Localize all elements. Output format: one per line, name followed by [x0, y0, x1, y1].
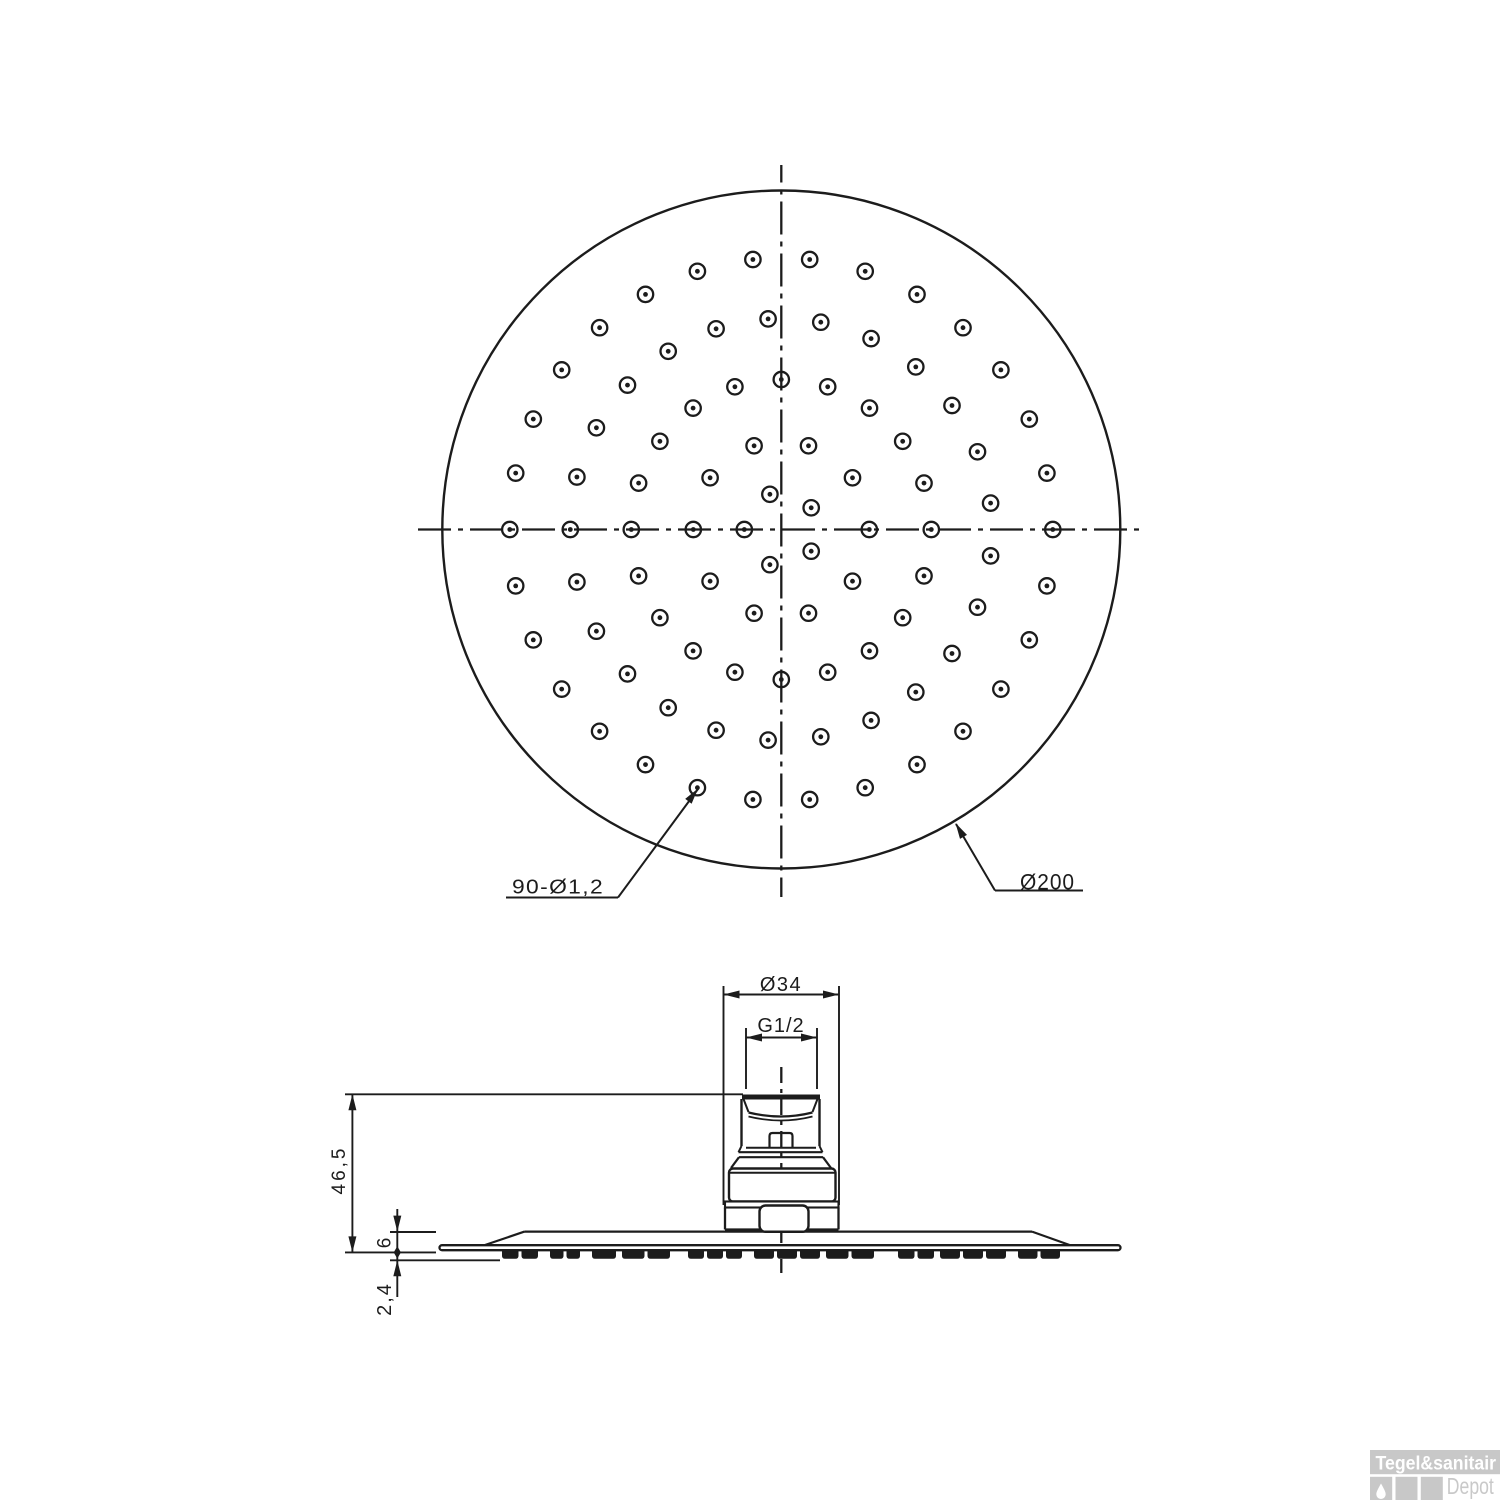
svg-text:Depot: Depot — [1447, 1473, 1494, 1499]
svg-text:2,4: 2,4 — [374, 1282, 396, 1316]
svg-text:G1/2: G1/2 — [757, 1015, 804, 1037]
svg-text:Tegel&sanitair: Tegel&sanitair — [1376, 1453, 1497, 1474]
svg-text:90-Ø1,2: 90-Ø1,2 — [512, 877, 604, 899]
svg-text:Ø200: Ø200 — [1020, 870, 1075, 895]
svg-text:Ø34: Ø34 — [760, 974, 802, 996]
svg-text:6: 6 — [375, 1238, 396, 1249]
svg-text:46,5: 46,5 — [329, 1146, 350, 1195]
